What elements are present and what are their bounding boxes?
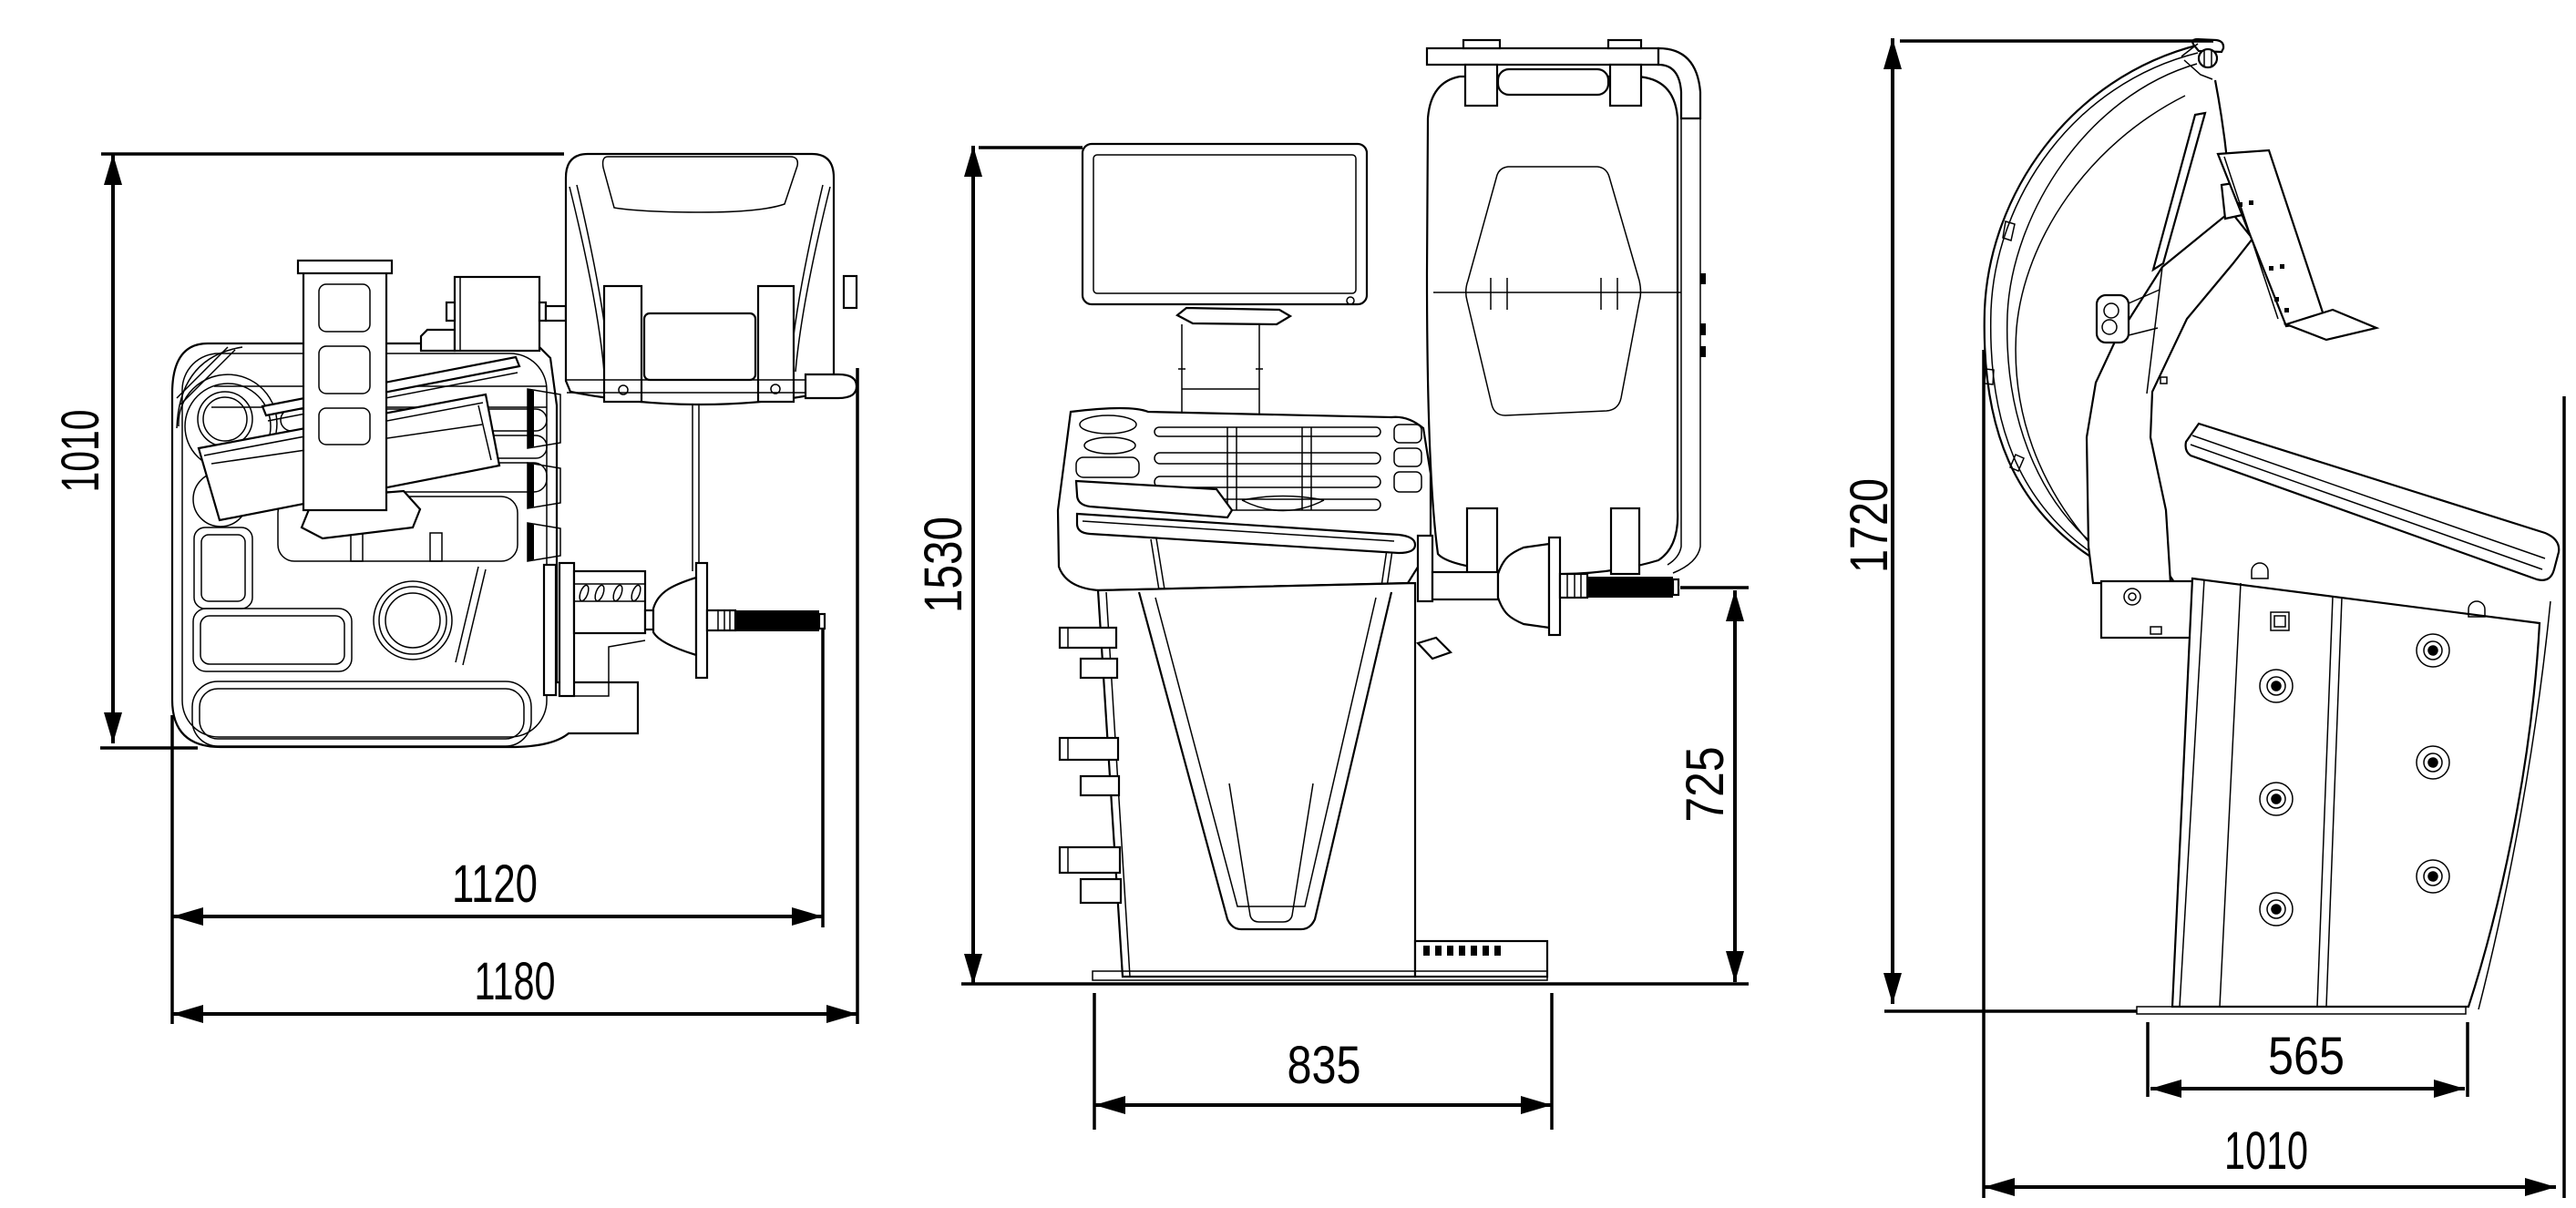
svg-text:1720: 1720 bbox=[1840, 478, 1899, 573]
svg-text:1010: 1010 bbox=[51, 410, 110, 493]
svg-text:835: 835 bbox=[1288, 1036, 1361, 1095]
svg-text:1120: 1120 bbox=[452, 855, 538, 914]
svg-text:565: 565 bbox=[2268, 1027, 2345, 1086]
svg-text:1530: 1530 bbox=[914, 517, 973, 613]
svg-text:1180: 1180 bbox=[475, 952, 556, 1011]
svg-text:1010: 1010 bbox=[2224, 1121, 2308, 1181]
svg-text:725: 725 bbox=[1676, 747, 1735, 823]
